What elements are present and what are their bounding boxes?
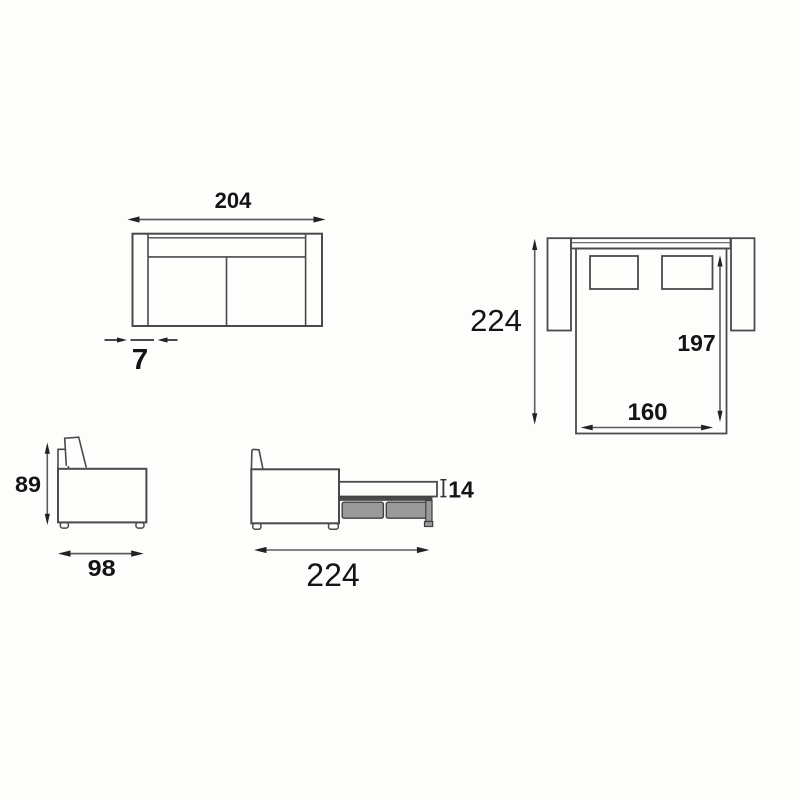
svg-text:224: 224 — [306, 557, 359, 593]
svg-text:7: 7 — [132, 344, 149, 376]
svg-text:89: 89 — [15, 472, 41, 497]
svg-text:197: 197 — [677, 330, 715, 356]
svg-text:224: 224 — [470, 303, 522, 338]
svg-text:204: 204 — [215, 188, 252, 213]
svg-text:160: 160 — [627, 399, 667, 426]
svg-text:14: 14 — [448, 477, 474, 503]
svg-text:98: 98 — [88, 555, 116, 581]
